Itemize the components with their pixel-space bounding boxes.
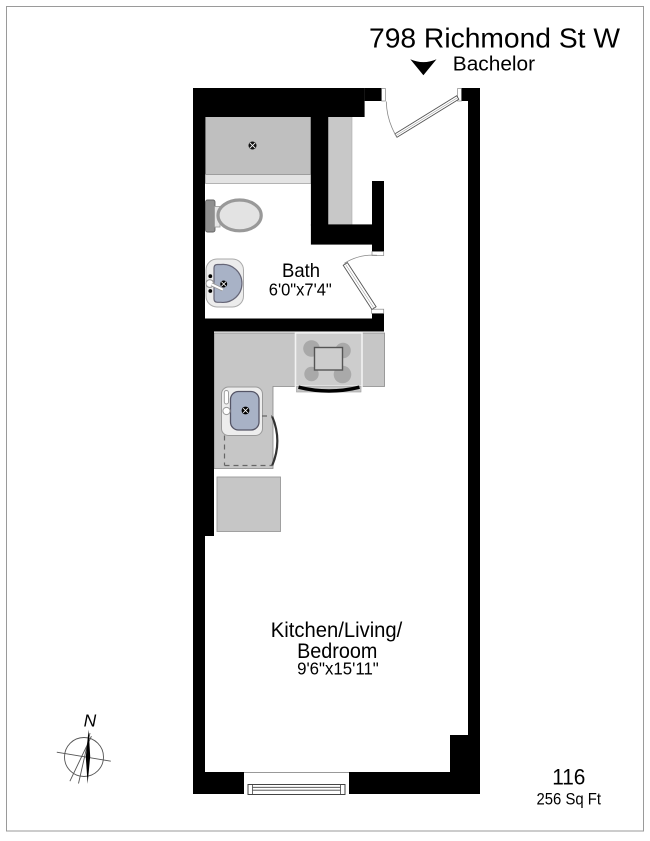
svg-text:Bachelor: Bachelor bbox=[453, 53, 536, 75]
svg-text:9'6"x15'11": 9'6"x15'11" bbox=[297, 659, 379, 679]
svg-text:N: N bbox=[84, 711, 97, 731]
svg-text:6'0"x7'4": 6'0"x7'4" bbox=[269, 280, 332, 300]
svg-text:256 Sq Ft: 256 Sq Ft bbox=[537, 789, 602, 808]
svg-text:116: 116 bbox=[552, 765, 585, 790]
svg-text:798 Richmond St W: 798 Richmond St W bbox=[369, 23, 621, 54]
